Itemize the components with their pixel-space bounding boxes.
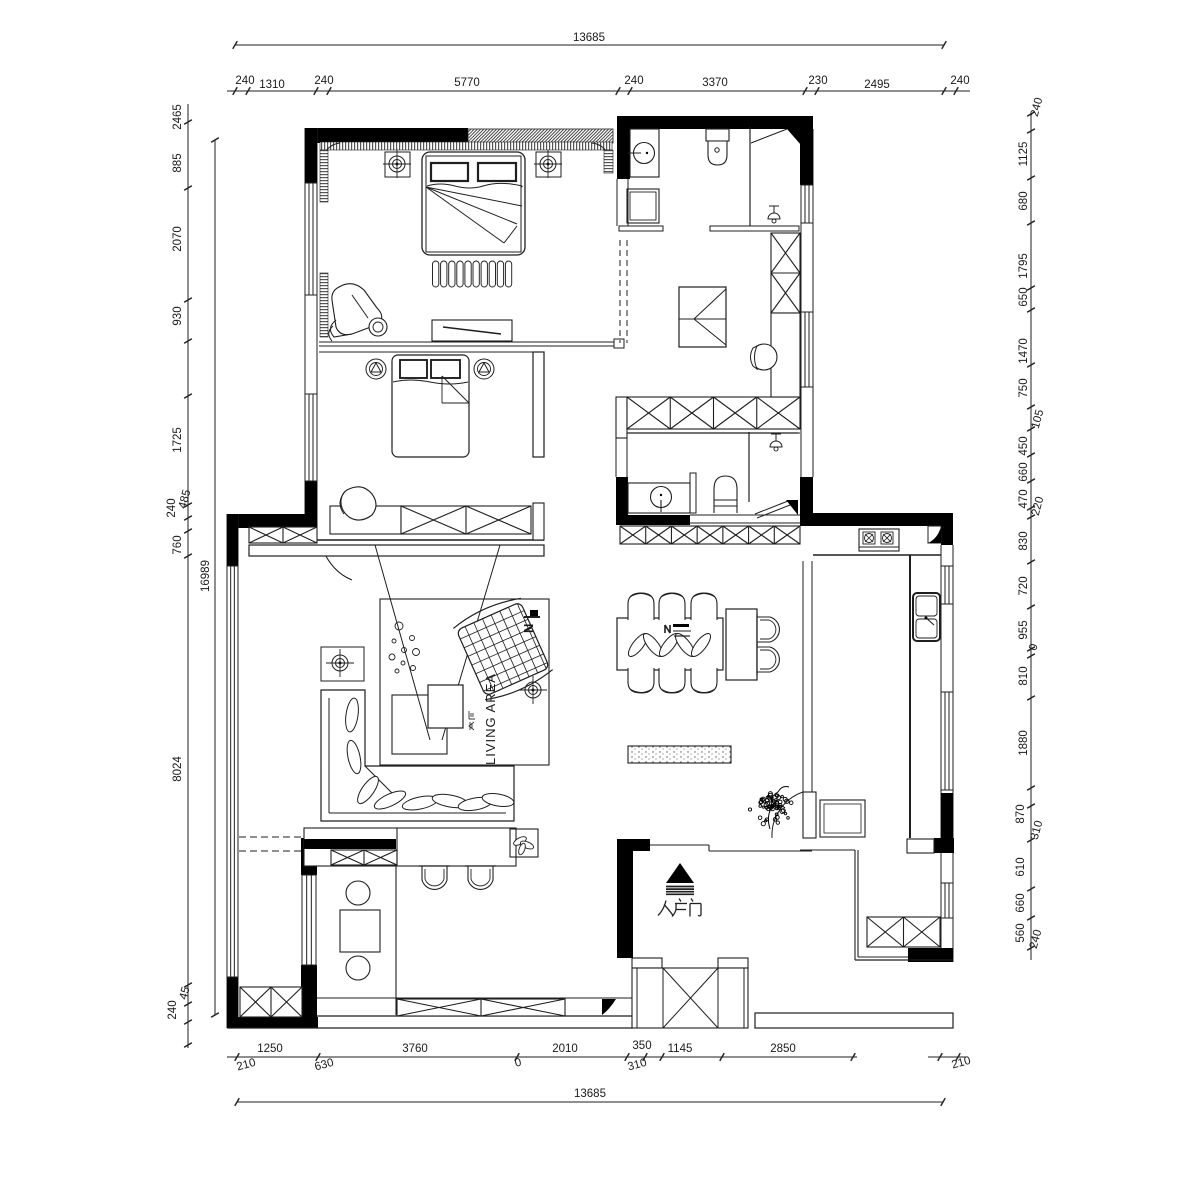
svg-text:470: 470 (1018, 489, 1030, 508)
svg-text:5770: 5770 (454, 77, 480, 89)
svg-text:240: 240 (235, 75, 254, 87)
svg-text:1250: 1250 (257, 1043, 283, 1055)
svg-text:1470: 1470 (1018, 338, 1030, 364)
svg-text:1145: 1145 (668, 1043, 693, 1055)
svg-text:560: 560 (1015, 923, 1027, 942)
svg-text:13685: 13685 (573, 32, 605, 44)
svg-text:1795: 1795 (1018, 253, 1030, 279)
svg-text:3370: 3370 (702, 77, 728, 89)
svg-text:240: 240 (950, 75, 969, 87)
svg-text:660: 660 (1018, 462, 1030, 481)
svg-text:450: 450 (1018, 436, 1030, 455)
svg-text:350: 350 (632, 1040, 651, 1052)
svg-text:240: 240 (167, 1000, 179, 1019)
svg-text:2465: 2465 (172, 104, 184, 130)
svg-text:1725: 1725 (172, 427, 184, 453)
svg-text:2495: 2495 (864, 79, 890, 91)
svg-text:230: 230 (808, 75, 827, 87)
svg-text:720: 720 (1018, 576, 1030, 595)
svg-text:2070: 2070 (172, 226, 184, 252)
svg-text:930: 930 (172, 306, 184, 325)
svg-text:885: 885 (172, 153, 184, 172)
svg-text:810: 810 (1018, 666, 1030, 685)
svg-text:870: 870 (1015, 804, 1027, 823)
svg-text:16989: 16989 (200, 560, 212, 592)
svg-text:680: 680 (1018, 191, 1030, 210)
svg-text:240: 240 (314, 75, 333, 87)
svg-text:830: 830 (1018, 531, 1030, 550)
svg-text:2850: 2850 (770, 1043, 796, 1055)
svg-text:610: 610 (1015, 857, 1027, 876)
svg-text:1310: 1310 (259, 79, 285, 91)
svg-text:660: 660 (1015, 893, 1027, 912)
svg-text:240: 240 (624, 75, 643, 87)
svg-text:650: 650 (1018, 287, 1030, 306)
svg-text:N: N (521, 624, 536, 633)
svg-text:2010: 2010 (552, 1043, 578, 1055)
svg-text:750: 750 (1018, 378, 1030, 397)
svg-text:13685: 13685 (574, 1088, 606, 1100)
svg-text:3760: 3760 (402, 1043, 428, 1055)
svg-text:1125: 1125 (1018, 142, 1030, 167)
svg-text:LIVING AREA: LIVING AREA (483, 673, 498, 765)
svg-text:955: 955 (1018, 620, 1030, 639)
svg-text:8024: 8024 (172, 756, 184, 782)
svg-text:760: 760 (172, 535, 184, 554)
svg-text:240: 240 (166, 498, 178, 517)
svg-text:1880: 1880 (1018, 730, 1030, 756)
